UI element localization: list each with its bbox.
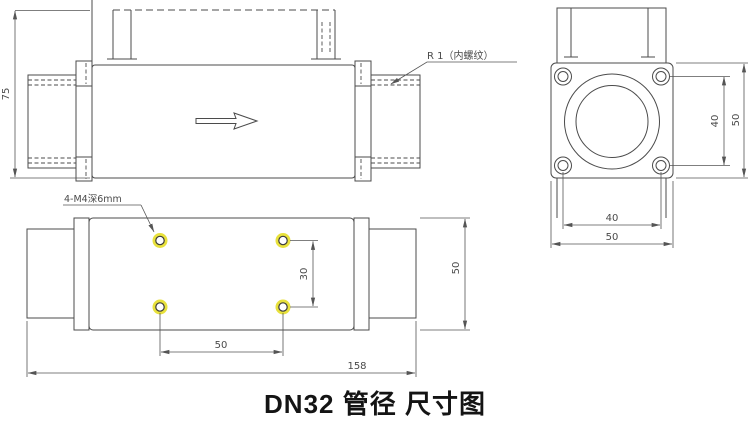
dimension-drawing: 75 R 1（内螺纹） — [0, 0, 750, 428]
dim-50h-label: 50 — [606, 232, 619, 243]
dim-50-pitch-label: 50 — [215, 340, 228, 351]
end-view-bore — [565, 74, 660, 169]
side-view-right-port — [355, 61, 420, 181]
bottom-view-left-port — [27, 229, 74, 318]
dim-40h-label: 40 — [606, 213, 619, 224]
end-view-bottom-tube — [557, 178, 666, 218]
dim-bolt-pitch-horizontal-40: 40 — [563, 172, 661, 229]
dim-30-label: 30 — [299, 268, 310, 281]
dim-hole-pitch-horizontal-50: 50 — [160, 313, 283, 356]
mounting-holes — [154, 235, 289, 314]
end-view-flange — [551, 63, 673, 178]
bottom-view-left-collar — [74, 218, 89, 330]
dim-40v-label: 40 — [710, 115, 721, 128]
tapped-hole-label: 4-M4深6mm — [64, 194, 122, 205]
flow-direction-arrow-icon — [196, 113, 257, 129]
dim-height-75: 75 — [1, 11, 90, 179]
thread-annotation: R 1（内螺纹） — [391, 49, 517, 84]
end-view: 40 50 40 50 — [551, 8, 748, 248]
side-view-top-head — [92, 0, 341, 65]
bottom-view-right-collar — [354, 218, 369, 330]
dim-bolt-pitch-vertical-40: 40 — [670, 77, 730, 166]
thread-spec-label: R 1（内螺纹） — [427, 49, 494, 62]
dim-158-label: 158 — [347, 361, 366, 372]
dim-50v-label: 50 — [731, 114, 742, 127]
side-view-left-port — [28, 61, 92, 181]
engineering-drawing-page: 75 R 1（内螺纹） — [0, 0, 750, 428]
bottom-view-body — [89, 218, 354, 330]
end-view-bolt-holes — [555, 68, 670, 174]
end-view-top-tube — [557, 8, 666, 63]
bottom-view: 4-M4深6mm 30 50 158 50 — [27, 194, 470, 377]
tapped-hole-annotation: 4-M4深6mm — [63, 194, 154, 232]
bottom-view-right-port — [369, 229, 416, 318]
drawing-title: DN32 管径 尺寸图 — [0, 384, 750, 421]
dim-75-label: 75 — [1, 88, 12, 101]
dim-hole-pitch-vertical-30: 30 — [290, 241, 318, 308]
side-view: 75 R 1（内螺纹） — [1, 0, 517, 181]
dim-body-width-50: 50 — [420, 218, 470, 330]
dim-50-width-label: 50 — [451, 262, 462, 275]
